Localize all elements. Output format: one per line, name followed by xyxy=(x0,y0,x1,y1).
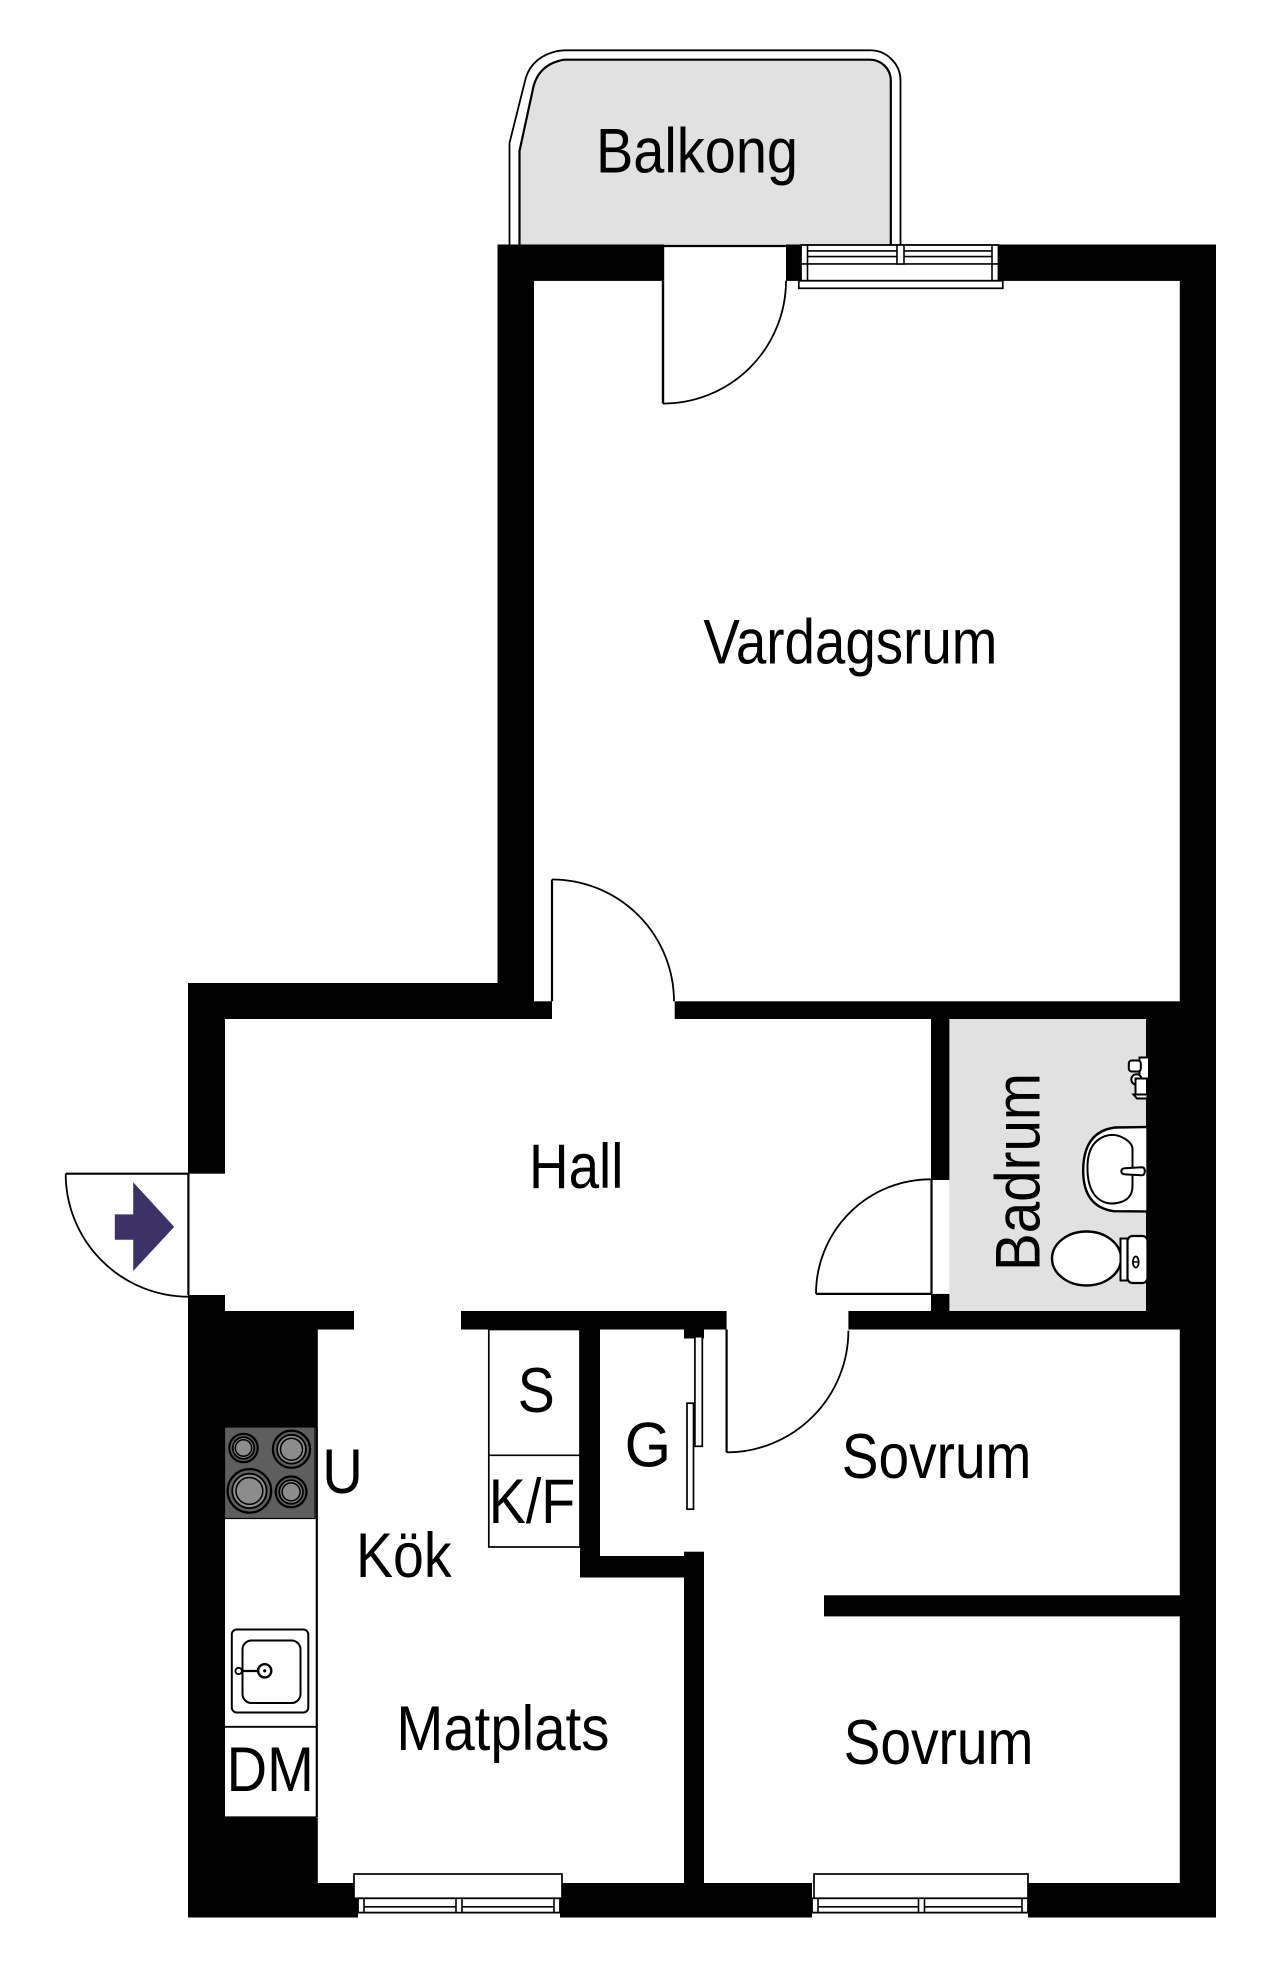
svg-text:Sovrum: Sovrum xyxy=(842,1422,1032,1492)
svg-text:S: S xyxy=(518,1356,555,1426)
svg-text:Kök: Kök xyxy=(356,1521,452,1591)
svg-text:K/F: K/F xyxy=(489,1467,575,1537)
svg-text:Badrum: Badrum xyxy=(984,1073,1054,1271)
svg-text:Vardagsrum: Vardagsrum xyxy=(703,608,997,678)
svg-text:Sovrum: Sovrum xyxy=(844,1708,1034,1778)
svg-text:Balkong: Balkong xyxy=(596,116,798,186)
svg-text:Matplats: Matplats xyxy=(396,1694,609,1764)
svg-text:DM: DM xyxy=(227,1735,314,1805)
svg-text:G: G xyxy=(625,1411,671,1481)
svg-text:U: U xyxy=(322,1437,363,1507)
svg-text:Hall: Hall xyxy=(529,1132,623,1202)
